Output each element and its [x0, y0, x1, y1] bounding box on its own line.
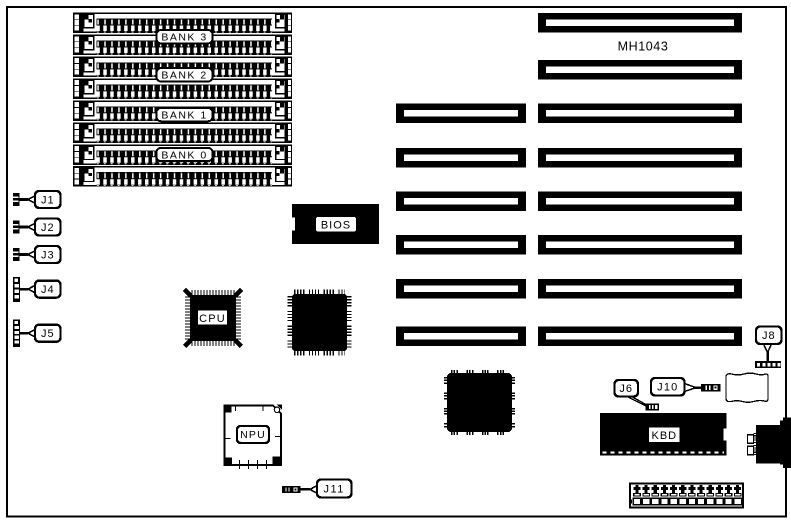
svg-text:J4: J4 [41, 284, 55, 296]
svg-text:BIOS: BIOS [321, 220, 351, 232]
svg-text:J8: J8 [762, 330, 776, 342]
svg-text:J1: J1 [41, 194, 55, 206]
svg-text:KBD: KBD [651, 430, 677, 442]
svg-text:BANK 0: BANK 0 [161, 149, 207, 161]
svg-text:MH1043: MH1043 [618, 40, 669, 54]
svg-text:J6: J6 [619, 383, 633, 395]
svg-text:BANK 1: BANK 1 [161, 110, 207, 122]
svg-text:NPU: NPU [240, 429, 266, 441]
svg-text:J10: J10 [657, 382, 678, 394]
svg-text:J2: J2 [41, 222, 55, 234]
svg-text:CPU: CPU [199, 313, 226, 325]
svg-text:BANK 2: BANK 2 [161, 70, 207, 82]
svg-text:J5: J5 [41, 328, 55, 340]
svg-text:J3: J3 [41, 249, 55, 261]
svg-text:BANK 3: BANK 3 [161, 32, 207, 44]
svg-text:J11: J11 [323, 483, 344, 495]
